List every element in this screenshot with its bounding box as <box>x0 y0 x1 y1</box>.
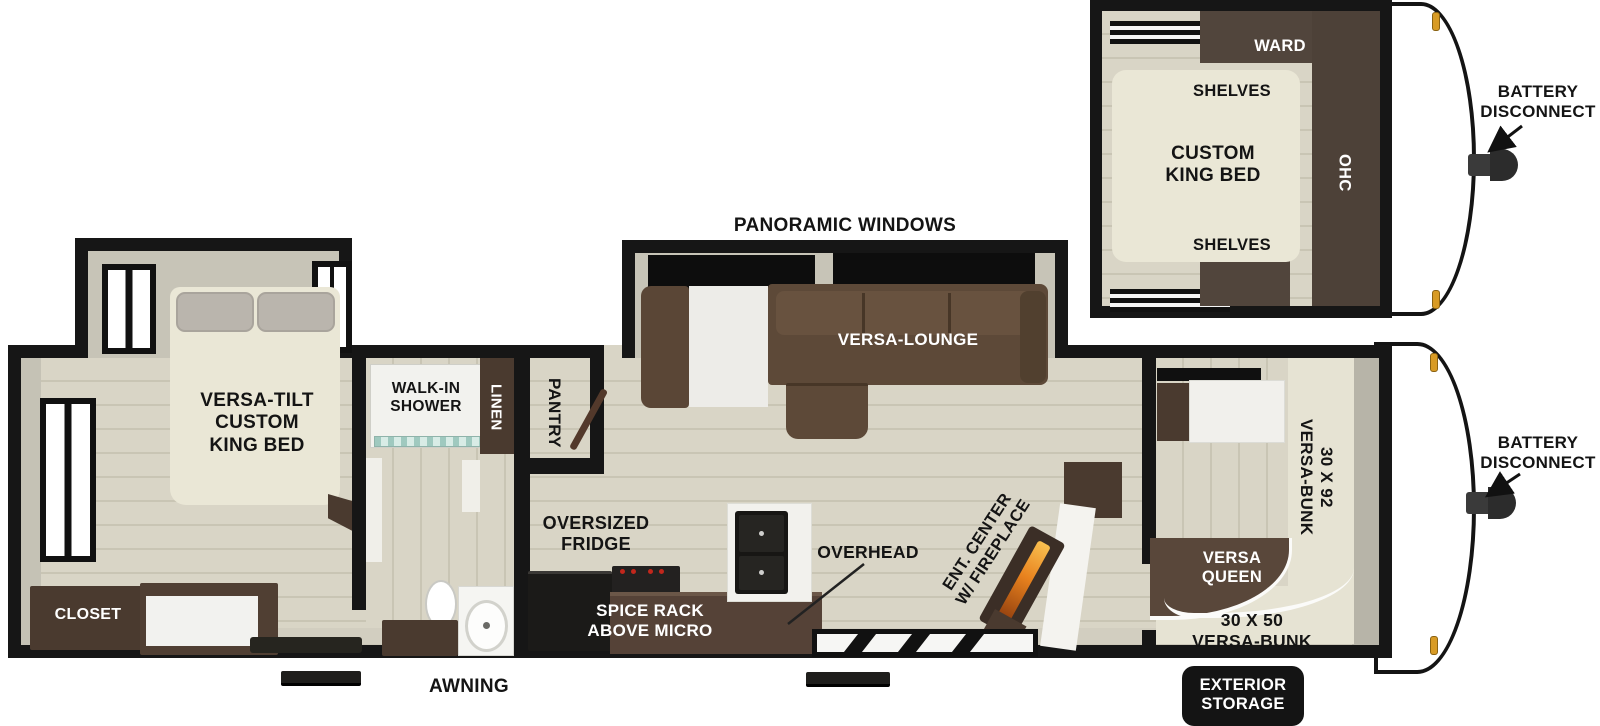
pantry-bottom-wall <box>514 458 604 474</box>
versa-queen-label: VERSAQUEEN <box>1180 549 1284 588</box>
awning-bracket-right <box>806 672 890 687</box>
floorplan-canvas: WARD SHELVES CUSTOMKING BED OHC SHELVES … <box>0 0 1600 726</box>
bedroom-slideout-window-left <box>102 264 156 354</box>
main-battery-disconnect-label: BATTERYDISCONNECT <box>1476 433 1600 473</box>
dresser-top <box>146 596 258 646</box>
living-bunk-wall <box>1142 358 1156 564</box>
front-wall-face <box>1352 358 1379 645</box>
inset-window-top <box>1110 21 1206 44</box>
sofa-cushion-divider-1 <box>862 293 865 333</box>
sofa-left-arm <box>641 286 689 408</box>
stove-knob-4 <box>659 569 664 574</box>
shower-glass <box>374 436 488 447</box>
entry-steps <box>812 629 1038 657</box>
bunkroom-counter <box>1189 380 1285 443</box>
sofa-cushion-divider-2 <box>948 293 951 333</box>
pantry-label: PANTRY <box>544 366 564 460</box>
bath-wall-stub-left <box>366 458 382 562</box>
main-clearance-light-top <box>1430 353 1438 372</box>
awning-bracket-left <box>281 671 361 686</box>
stove-knob-3 <box>648 569 653 574</box>
bed-pillow-left <box>176 292 254 332</box>
walk-in-shower-label: WALK-INSHOWER <box>368 380 484 417</box>
living-bunk-wall-stub <box>1142 630 1156 645</box>
versa-tilt-king-bed-label: VERSA-TILTCUSTOMKING BED <box>157 390 357 457</box>
entry-step-bar-3 <box>946 629 991 657</box>
inset-clearance-light-top <box>1432 12 1440 31</box>
stove-knob-2 <box>631 569 636 574</box>
overhead-label: OVERHEAD <box>800 542 936 563</box>
inset-battery-disconnect-label: BATTERYDISCONNECT <box>1476 82 1600 122</box>
bedroom-bath-wall <box>352 358 366 610</box>
sofa-chaise <box>786 383 868 439</box>
spice-rack-label: SPICE RACKABOVE MICRO <box>558 601 742 641</box>
inset-clearance-light-bottom <box>1432 290 1440 309</box>
bunkroom-cabinet <box>1157 383 1189 441</box>
sink-drain-top <box>759 531 764 536</box>
bath-wall-stub-right <box>462 460 480 512</box>
sofa-back-cushions <box>776 291 1040 335</box>
bed-pillow-right <box>257 292 335 332</box>
linen-label: LINEN <box>487 369 505 445</box>
inset-hitch-pin-icon <box>1490 149 1518 181</box>
inset-shelves-bottom-label: SHELVES <box>1162 236 1302 255</box>
inset-ward-label: WARD <box>1240 37 1320 56</box>
stove-knob-1 <box>620 569 625 574</box>
inset-battery-arrow-icon <box>1492 126 1522 149</box>
bath-cabinet <box>382 620 458 656</box>
versa-bunk-30x92-label: 30 X 92VERSA-BUNK <box>1296 392 1336 562</box>
bedroom-wall-window <box>40 398 96 562</box>
closet-label: CLOSET <box>30 606 146 625</box>
versa-lounge-label: VERSA-LOUNGE <box>793 330 1023 350</box>
bath-sink-drain <box>483 622 490 629</box>
main-clearance-light-bottom <box>1430 636 1438 655</box>
main-hitch-pin-icon <box>1488 487 1516 519</box>
sink-drain-bottom <box>759 570 764 575</box>
inset-shelves-top-label: SHELVES <box>1162 82 1302 101</box>
oversized-fridge-label: OVERSIZEDFRIDGE <box>520 513 672 555</box>
inset-front-cap <box>1378 2 1476 316</box>
inset-ohc-label: OHC <box>1334 141 1353 205</box>
bedroom-floor-mat <box>250 637 362 653</box>
sofa-right-arm <box>1020 291 1046 383</box>
awning-label: AWNING <box>399 676 539 698</box>
inset-shelves-cabinet <box>1200 255 1290 306</box>
exterior-storage-label: EXTERIORSTORAGE <box>1182 676 1304 715</box>
inset-king-bed-label: CUSTOMKING BED <box>1143 143 1283 188</box>
panoramic-windows-label: PANORAMIC WINDOWS <box>690 215 1000 237</box>
entry-step-bar-2 <box>892 629 937 657</box>
sofa-side-table <box>689 286 768 407</box>
entry-step-bar-1 <box>838 629 883 657</box>
versa-bunk-30x50-label: 30 X 50VERSA-BUNK <box>1166 610 1338 651</box>
